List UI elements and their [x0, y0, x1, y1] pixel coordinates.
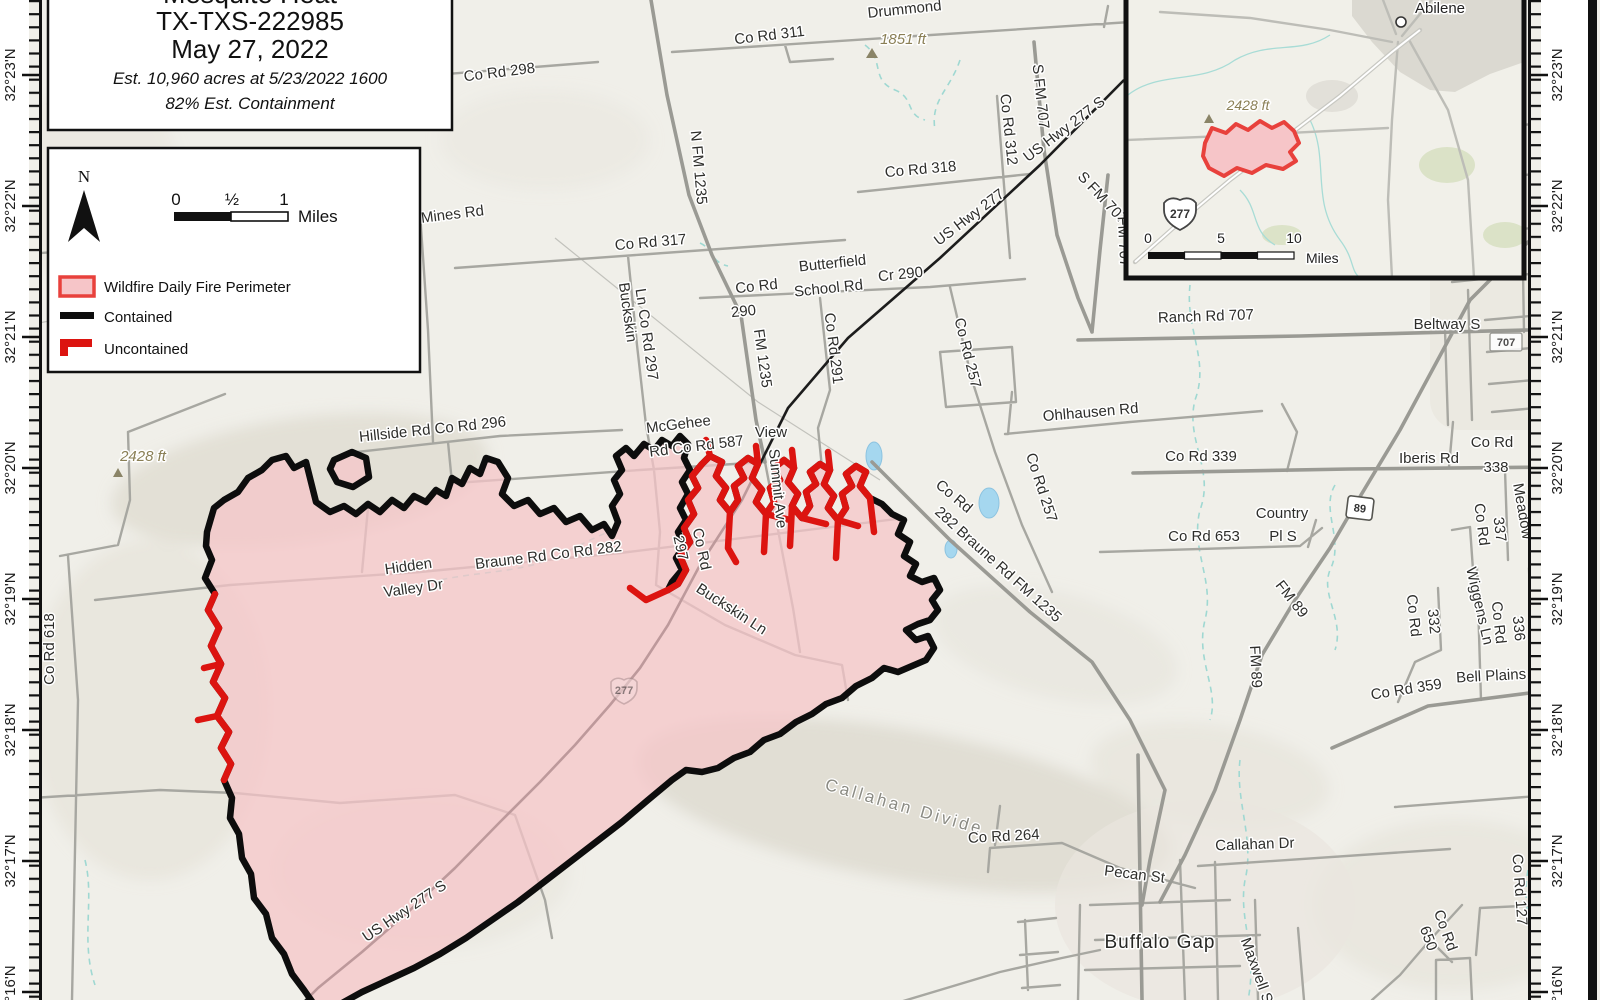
tx-89-shield-label: 89 [1353, 502, 1367, 515]
road-label-country-pl-line2: Pl S [1269, 528, 1297, 545]
incident-number: TX-TXS-222985 [156, 6, 344, 36]
inset-scale-unit: Miles [1306, 250, 1339, 266]
road-label-co-rd-336-line2: 336 [1509, 615, 1529, 642]
lat-label: 32°17'N [2, 834, 19, 887]
lat-label: 32°17'N [1549, 834, 1566, 887]
road-label-co-rd-618: Co Rd 618 [41, 613, 58, 685]
scale-1: 1 [279, 190, 288, 209]
lat-label: 32°19'N [1549, 572, 1566, 625]
wildfire-map-sheet: 277 Drummond Co Rd 311 1851 ft Co Rd 298… [0, 0, 1600, 1000]
acreage-estimate: Est. 10,960 acres at 5/23/2022 1600 [113, 69, 388, 88]
road-label-co-rd-332-line2: 332 [1424, 608, 1444, 635]
lat-label: 32°16'N [1549, 965, 1566, 1000]
place-label-buffalo-gap: Buffalo Gap [1104, 932, 1215, 953]
inset-scale-10: 10 [1286, 230, 1302, 246]
inset-scale-0: 0 [1144, 230, 1152, 246]
scale-seg-white [231, 212, 288, 221]
tx-89-shield: 89 [1346, 495, 1374, 520]
scale-0: 0 [171, 190, 180, 209]
legend-box: N 0 ½ 1 Miles Wildfire Daily Fire Perime… [48, 148, 420, 372]
place-label-view: View [755, 424, 787, 441]
lat-label: 32°18'N [2, 703, 19, 756]
north-label: N [78, 167, 90, 186]
road-label-ranch-rd-707: Ranch Rd 707 [1158, 306, 1254, 326]
map-date: May 27, 2022 [171, 34, 329, 64]
lat-label: 32°18'N [1549, 703, 1566, 756]
inset-us-277-shield-label: 277 [1170, 207, 1190, 221]
legend-label-perimeter: Wildfire Daily Fire Perimeter [104, 279, 291, 296]
title-box: Mesquite Heat TX-TXS-222985 May 27, 2022… [48, 0, 452, 130]
containment-estimate: 82% Est. Containment [165, 94, 335, 113]
elevation-label-1851: 1851 ft [880, 31, 927, 48]
road-label-fm-89-a: FM 89 [1246, 645, 1265, 688]
inset-scale-5: 5 [1217, 230, 1225, 246]
outer-neatline [1588, 0, 1597, 1000]
us-277-shield-faint-label: 277 [615, 685, 633, 697]
road-label-co-rd-337-line2: 337 [1490, 516, 1510, 543]
scale-unit: Miles [298, 207, 338, 226]
fm-707-shield-label: 707 [1497, 337, 1515, 349]
road-label-callahan-dr: Callahan Dr [1215, 835, 1295, 855]
scale-seg-black [174, 212, 231, 221]
inset-scale-seg1 [1148, 252, 1185, 259]
lat-label: 32°19'N [2, 572, 19, 625]
fm-707-shield: 707 [1490, 333, 1522, 351]
legend-label-uncontained: Uncontained [104, 341, 188, 358]
lat-label: 32°22'N [2, 179, 19, 232]
road-label-co-rd-338-line2: 338 [1483, 459, 1508, 476]
elevation-label-2428: 2428 ft [119, 448, 167, 465]
right-neatline [1528, 0, 1531, 1000]
inset-elevation-label: 2428 ft [1226, 97, 1271, 113]
right-minor-ticks [1530, 0, 1541, 1000]
road-label-country-pl-line1: Country [1256, 505, 1309, 522]
legend-label-contained: Contained [104, 309, 172, 326]
inset-abilene-label: Abilene [1415, 0, 1465, 17]
left-neatline [39, 0, 42, 1000]
map-canvas: 277 Drummond Co Rd 311 1851 ft Co Rd 298… [0, 0, 1600, 1000]
lat-label: 32°23'N [1549, 48, 1566, 101]
left-minor-ticks [29, 0, 40, 1000]
lat-label: 32°22'N [1549, 179, 1566, 232]
lat-label: 32°21'N [1549, 310, 1566, 363]
road-label-co-rd-653: Co Rd 653 [1168, 528, 1240, 545]
lat-label: 32°16'N [2, 965, 19, 1000]
inset-scale-seg4 [1258, 252, 1295, 259]
inset-scale-seg2 [1185, 252, 1222, 259]
inset-abilene-marker [1396, 17, 1406, 27]
scale-half: ½ [225, 190, 239, 209]
road-label-iberis-rd: Iberis Rd [1399, 450, 1459, 467]
road-label-co-rd-339: Co Rd 339 [1165, 448, 1237, 465]
inset-map: 2428 ft Abilene 277 0 5 10 Miles [1126, 0, 1527, 278]
road-label-co-rd-290-line2: 290 [730, 302, 757, 322]
inset-fire-perimeter [1203, 121, 1299, 176]
legend-swatch-perimeter [60, 277, 94, 296]
lat-label: 32°21'N [2, 310, 19, 363]
road-label-co-rd-338-line1: Co Rd [1471, 434, 1514, 451]
lat-label: 32°23'N [2, 48, 19, 101]
road-label-beltway-s: Beltway S [1414, 316, 1481, 333]
lat-label: 32°20'N [1549, 441, 1566, 494]
legend-frame [48, 148, 420, 372]
inset-scale-seg3 [1221, 252, 1258, 259]
lat-label: 32°20'N [2, 441, 19, 494]
legend-swatch-contained [60, 312, 94, 319]
